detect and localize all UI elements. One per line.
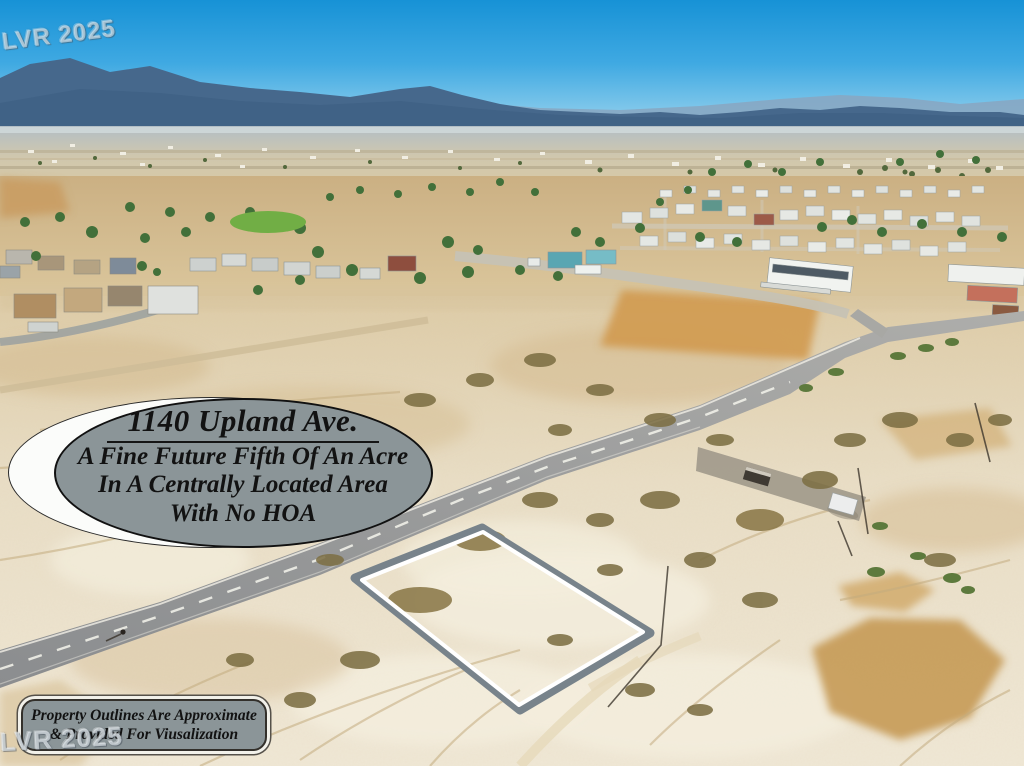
scene-graphic — [0, 0, 1024, 766]
listing-tagline-2: In A Centrally Located Area — [63, 471, 423, 499]
listing-tagline-3: With No HOA — [63, 500, 423, 528]
listing-tagline-1: A Fine Future Fifth Of An Acre — [63, 443, 423, 471]
disclaimer-line-2: & Provided For Viusalization — [23, 725, 265, 744]
listing-address: 1140 Upland Ave. — [107, 404, 378, 443]
disclaimer-plaque: Property Outlines Are Approximate & Prov… — [21, 699, 267, 751]
listing-badge: 1140 Upland Ave. A Fine Future Fifth Of … — [63, 404, 423, 528]
grass-patch — [230, 211, 306, 233]
mid-ground — [0, 176, 1024, 302]
disclaimer-line-1: Property Outlines Are Approximate — [23, 706, 265, 725]
aerial-listing-photo: 1140 Upland Ave. A Fine Future Fifth Of … — [0, 0, 1024, 766]
